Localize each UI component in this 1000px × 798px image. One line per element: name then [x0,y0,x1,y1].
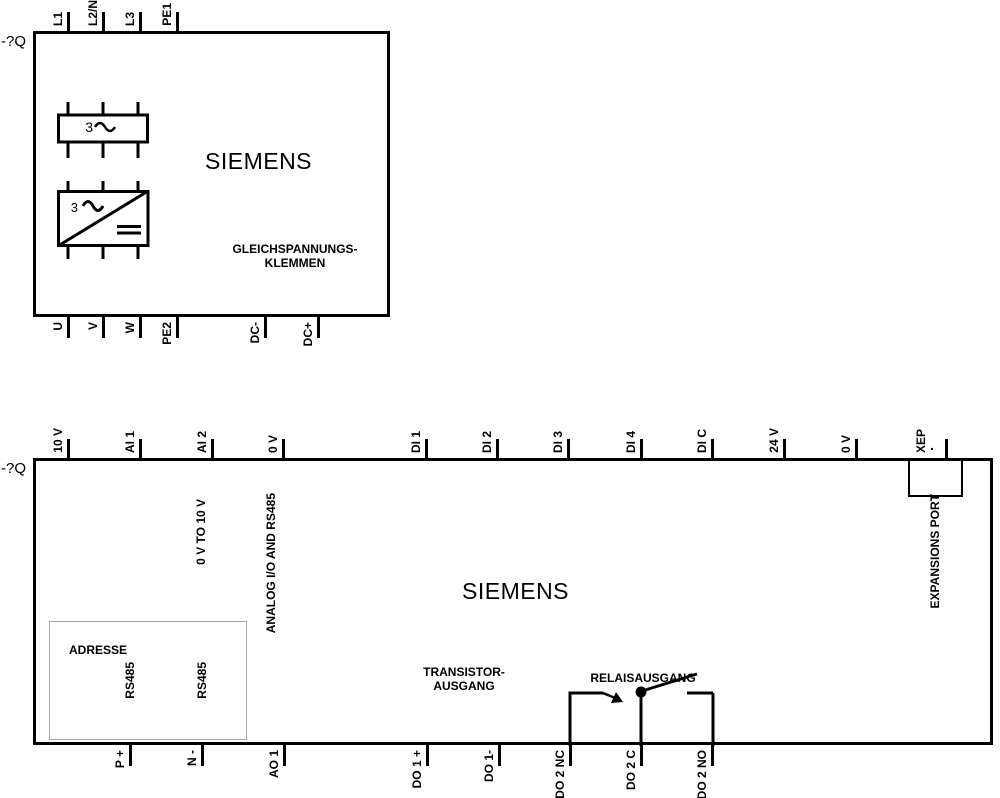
terminal-label-do-2-no: DO 2 NO [695,750,709,798]
terminal-tick-0-v [282,439,285,458]
terminal-tick-di-2 [496,439,499,458]
terminal-label-do-2-nc: DO 2 NC [553,750,567,798]
terminal-label-l1: L1 [51,12,65,26]
terminal-tick-di-4 [640,439,643,458]
terminal-tick-24-v [783,439,786,458]
terminal-tick-pe1 [176,12,179,31]
terminal-tick-ao-1 [283,745,286,766]
relay-output-label: RELAISAUSGANG [583,671,703,685]
control-module-ref-label: -?Q [1,461,26,477]
terminal-tick-ai-1 [139,439,142,458]
terminal-label-dc-: DC+ [301,322,315,346]
terminal-label-dc-: DC- [248,322,262,343]
terminal-tick-do-1- [498,745,501,766]
power-module-caption-line1: GLEICHSPANNUNGS- [215,242,375,256]
terminal-tick-0-v [855,439,858,458]
terminal-label-l3: L3 [123,12,137,26]
expansion-port-label: EXPANSIONS PORT [928,494,942,608]
terminal-tick-do-1- [426,745,429,766]
control-module-brand: SIEMENS [462,579,569,603]
terminal-label-10-v: 10 V [51,428,65,453]
terminal-label-n-: N - [185,750,199,766]
terminal-tick-v [102,317,105,338]
terminal-tick-p- [129,745,132,766]
address-box [49,621,247,740]
terminal-label-24-v: 24 V [767,428,781,453]
analog-bus-label: ANALOG I/O AND RS485 [264,493,278,633]
terminal-label-do-1-: DO 1 + [410,750,424,788]
terminal-label-di-c: DI C [695,429,709,453]
terminal-label-do-2-c: DO 2 C [624,750,638,790]
terminal-tick-di-3 [567,439,570,458]
terminal-tick-dc- [317,317,320,338]
terminal-label-di-1: DI 1 [409,431,423,453]
terminal-label-p-: P + [113,750,127,768]
wiring-diagram-canvas: -?Q SIEMENS GLEICHSPANNUNGS- KLEMMEN -?Q… [0,0,1000,798]
power-module-ref-label: -?Q [1,34,26,50]
terminal-tick-l2-n [102,12,105,31]
terminal-label-pe1: PE1 [160,3,174,26]
terminal-tick-di-c [711,439,714,458]
terminal-tick-di-1 [425,439,428,458]
transistor-output-label-line1: TRANSISTOR- [404,665,524,679]
power-module-outline [33,31,390,317]
terminal-label-pe2: PE2 [160,322,174,345]
address-label: ADRESSE [69,643,127,657]
terminal-tick-xep [945,439,948,458]
terminal-label-ai-2: AI 2 [195,431,209,453]
terminal-tick-10-v [67,439,70,458]
rs485-label-2: RS485 [195,662,209,699]
terminal-label-ai-1: AI 1 [123,431,137,453]
terminal-tick-w [139,317,142,338]
expansion-port-box [908,461,963,497]
terminal-label-do-1-: DO 1- [482,750,496,782]
terminal-label-di-3: DI 3 [551,431,565,453]
rs485-label-1: RS485 [123,662,137,699]
terminal-tick-pe2 [176,317,179,338]
terminal-label-v: V [86,322,100,330]
terminal-label-0-v: 0 V [839,435,853,453]
terminal-tick-do-2-nc [569,745,572,766]
terminal-label-u: U [51,322,65,331]
terminal-label-di-4: DI 4 [624,431,638,453]
terminal-tick-l3 [139,12,142,31]
terminal-tick-dc- [264,317,267,338]
power-module-brand: SIEMENS [205,149,312,173]
terminal-tick-ai-2 [211,439,214,458]
xep-terminal-dot: . [930,438,934,452]
analog-range-label: 0 V TO 10 V [194,499,208,565]
terminal-label-di-2: DI 2 [480,431,494,453]
terminal-label-l2-n: L2/N [86,0,100,26]
terminal-label-0-v: 0 V [266,435,280,453]
power-module-caption-line2: KLEMMEN [215,256,375,270]
terminal-label-xep: XEP [914,429,928,453]
terminal-tick-l1 [67,12,70,31]
terminal-tick-do-2-no [711,745,714,766]
transistor-output-label-line2: AUSGANG [404,679,524,693]
terminal-tick-u [67,317,70,338]
terminal-label-w: W [123,322,137,333]
terminal-tick-n- [201,745,204,766]
terminal-tick-do-2-c [640,745,643,766]
terminal-label-ao-1: AO 1 [267,750,281,778]
